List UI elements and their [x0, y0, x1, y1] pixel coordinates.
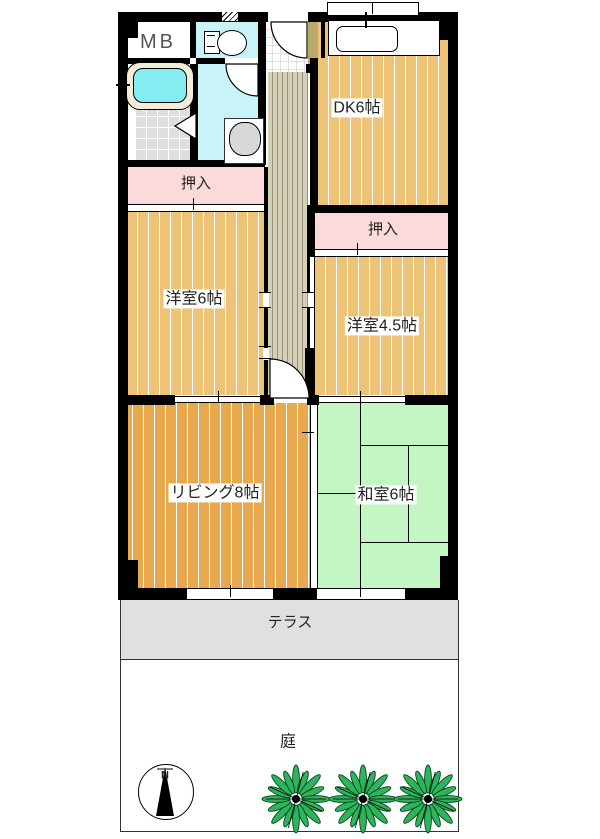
kitchen-window-divider	[372, 2, 373, 14]
room-label-closet-north: 押入	[179, 175, 213, 193]
room-label-dk: DK6帖	[331, 98, 382, 117]
wall-mid-right	[405, 395, 448, 405]
room-divider	[310, 403, 318, 588]
tatami-line	[316, 493, 360, 494]
bathroom-tile-floor	[136, 106, 190, 160]
floor-plan: MB DK6帖 押入 洋室6帖 押入 洋室4.5帖 リビング8帖 和室6帖 テラ…	[0, 0, 600, 839]
wall-mid-left	[118, 395, 175, 405]
tatami-line	[360, 542, 452, 543]
tick	[218, 391, 219, 403]
tick	[193, 198, 194, 210]
vent-hatch	[222, 12, 238, 21]
room-label-garden: 庭	[278, 732, 298, 751]
washbasin	[229, 122, 261, 156]
wall-corridor-right-post	[305, 348, 315, 398]
compass-north-label: N	[159, 769, 171, 782]
wall-corner-bl	[118, 560, 138, 600]
closet-north-door-line	[127, 211, 265, 212]
wall-corner-br	[440, 556, 458, 600]
tatami-line	[360, 445, 452, 446]
kitchen-window	[327, 2, 419, 16]
bathtub-water	[133, 68, 187, 103]
toilet-tank-handle	[207, 46, 215, 47]
wall-dk-left	[310, 58, 318, 205]
bath-faucet	[116, 84, 130, 86]
wall-corridor-right	[307, 308, 310, 348]
sliding-door-line	[318, 396, 405, 397]
wall-corridor-right	[307, 257, 310, 293]
tick	[302, 292, 314, 293]
wall-mb-toilet	[190, 22, 196, 58]
tick	[230, 585, 231, 597]
entrance-tile	[265, 22, 308, 73]
wall-corridor-left	[264, 167, 268, 398]
room-label-living: リビング8帖	[169, 483, 262, 502]
wall-dk-left-upper	[321, 15, 325, 58]
window-opening	[317, 589, 405, 599]
closet-east-door-line	[315, 256, 448, 257]
tick	[302, 432, 314, 433]
room-label-mb: MB	[138, 30, 178, 54]
room-label-japanese-6: 和室6帖	[356, 485, 417, 504]
closet-north-door-line	[127, 204, 265, 205]
wall-corner-tr	[438, 12, 458, 40]
room-label-western-45: 洋室4.5帖	[345, 316, 419, 335]
wall-mid-post	[307, 395, 319, 405]
toilet-bowl	[217, 30, 247, 56]
room-label-terrace: テラス	[266, 614, 315, 632]
tick	[259, 358, 271, 359]
wall-corner-tl	[118, 12, 138, 38]
corridor	[268, 72, 308, 398]
tick	[357, 243, 358, 255]
sliding-door-line	[318, 402, 405, 403]
toilet-tank-handle	[207, 35, 215, 36]
corridor-left-opening	[263, 293, 269, 308]
wall-mid-post	[260, 395, 274, 405]
closet-east-door-line	[315, 249, 448, 250]
wall-dk-bottom	[307, 205, 448, 213]
wall-closet-east-left	[307, 213, 315, 257]
tick	[259, 292, 271, 293]
tick	[259, 307, 271, 308]
toilet-door-opening	[225, 58, 258, 64]
room-label-closet-east: 押入	[366, 221, 400, 239]
entrance-opening	[268, 12, 308, 22]
tick	[360, 391, 361, 403]
kitchen-sink	[336, 26, 398, 52]
room-label-western-6: 洋室6帖	[164, 289, 225, 308]
tick	[259, 346, 271, 347]
kitchen-tap	[365, 12, 367, 28]
wall-right	[448, 12, 458, 600]
tick	[302, 307, 314, 308]
tick	[360, 585, 361, 597]
wall-bottom	[118, 588, 458, 600]
